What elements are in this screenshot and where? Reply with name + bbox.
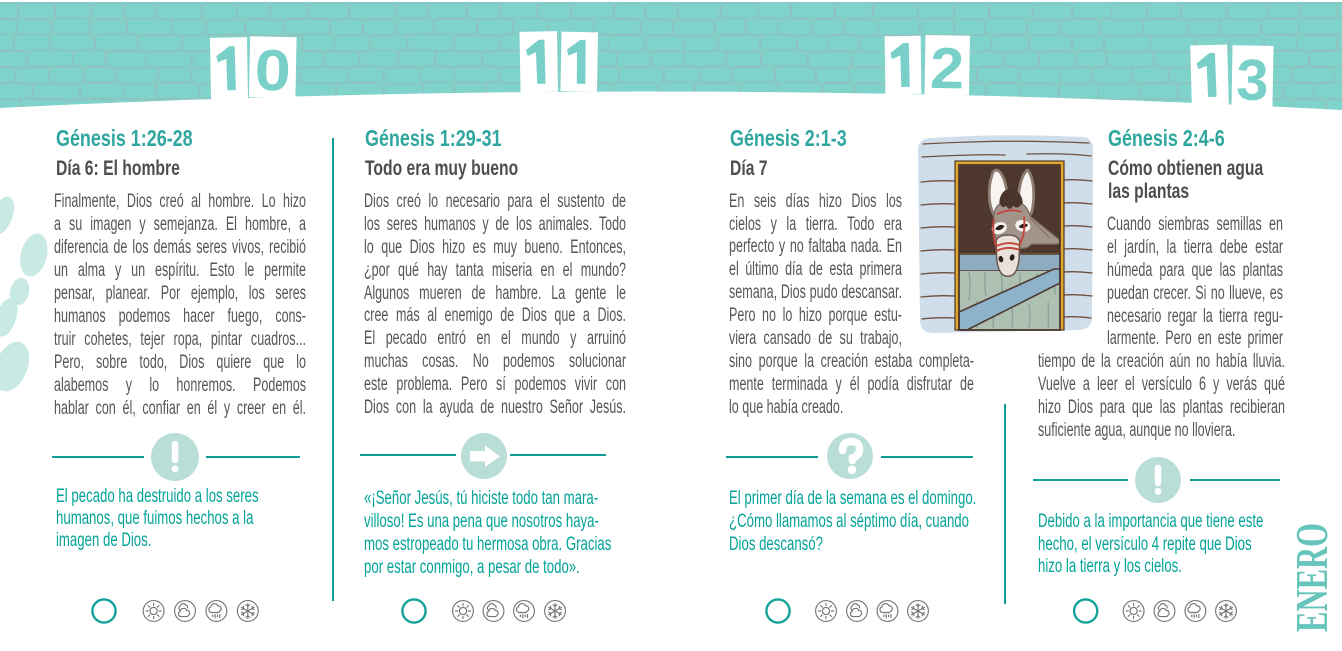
- svg-text:3: 3: [1236, 48, 1269, 114]
- svg-text:0: 0: [254, 38, 291, 104]
- svg-text:2: 2: [930, 36, 965, 102]
- svg-text:ENERO: ENERO: [1288, 523, 1334, 632]
